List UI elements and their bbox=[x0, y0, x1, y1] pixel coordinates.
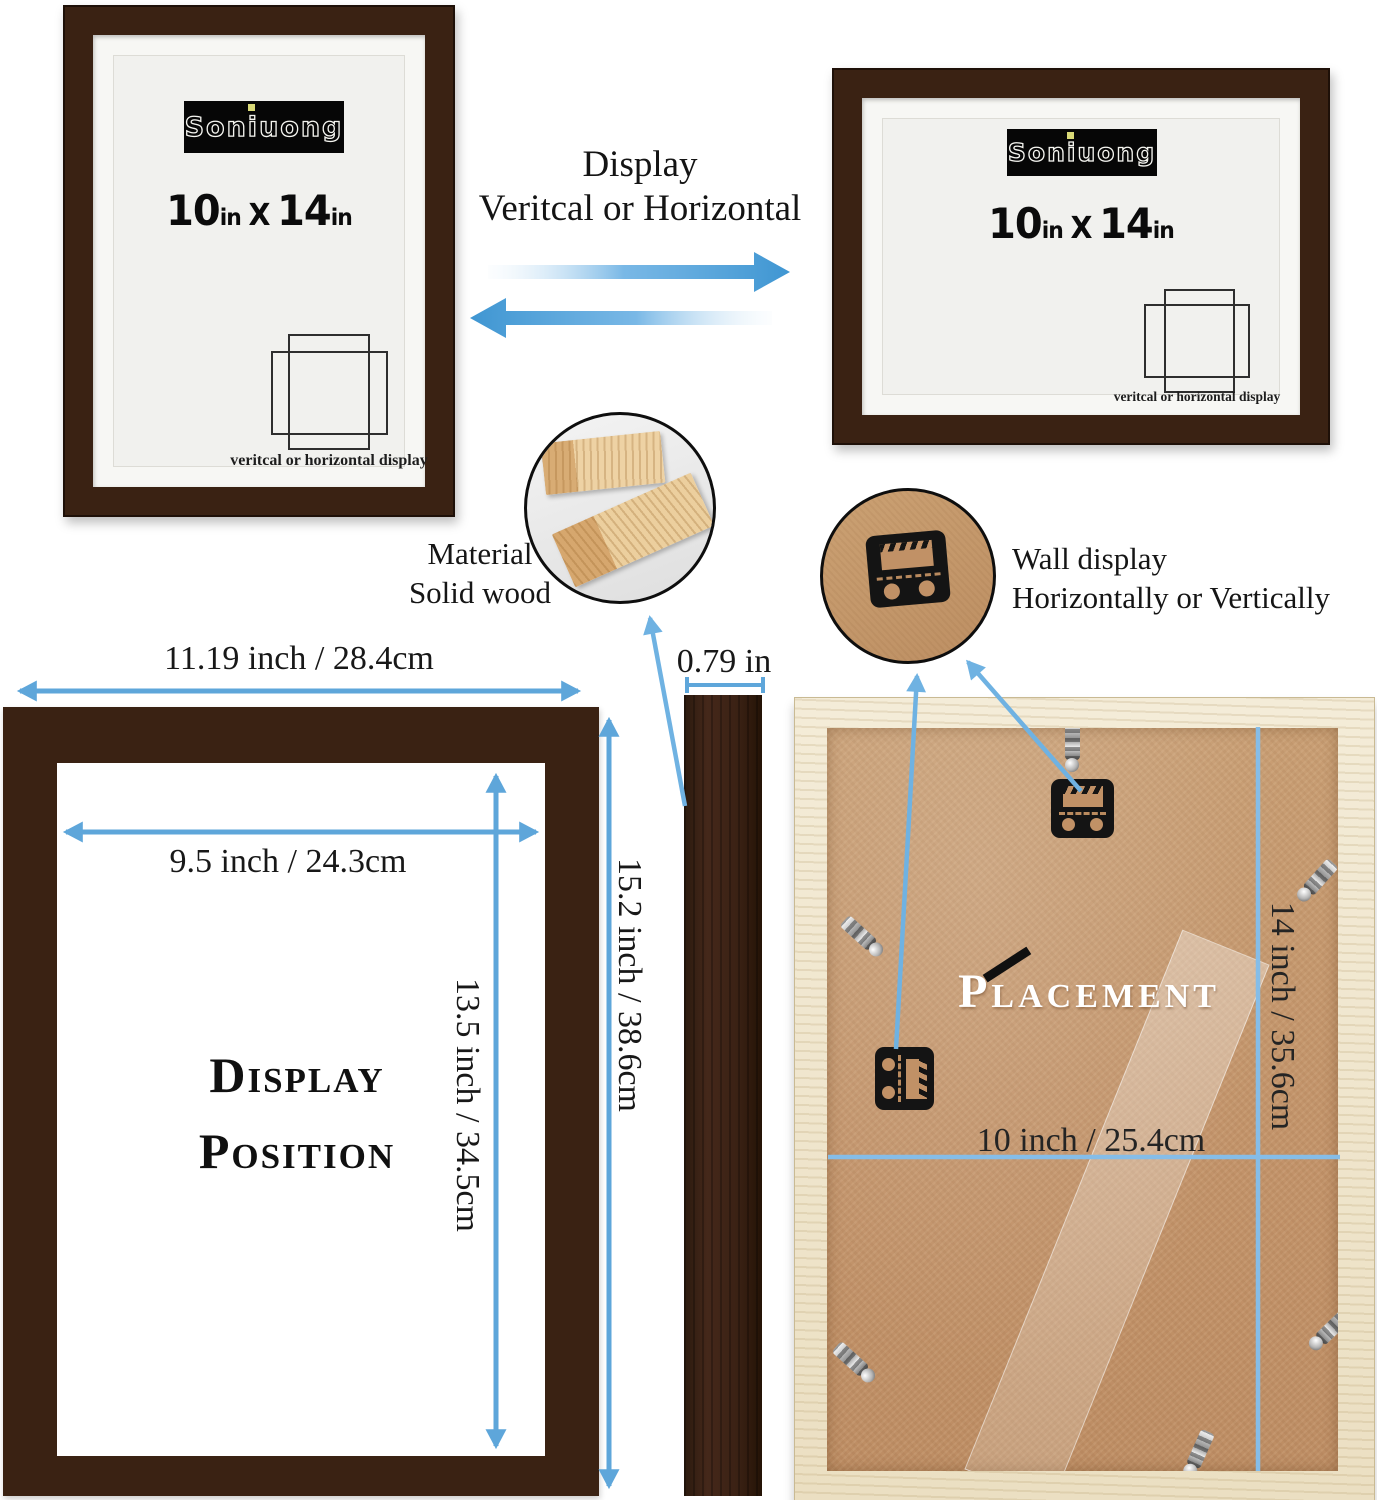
display-position-title-line2: Position bbox=[97, 1122, 497, 1180]
orientation-landscape-rect-icon bbox=[1144, 304, 1250, 378]
size-width-unit: in bbox=[220, 205, 241, 231]
size-width-unit: in bbox=[1042, 218, 1063, 244]
metal-clip-icon bbox=[1302, 858, 1338, 896]
inner-height-label: 13.5 inch / 34.5cm bbox=[447, 905, 487, 1305]
clip-screw bbox=[1181, 1461, 1199, 1471]
brand-logo: Soniuong bbox=[1007, 129, 1157, 176]
size-separator: X bbox=[241, 198, 277, 233]
size-label: 10inX14in bbox=[121, 186, 397, 235]
sawtooth-hanger-icon bbox=[875, 1047, 934, 1110]
orientation-caption: veritcal or horizontal display bbox=[209, 452, 449, 470]
brand-logo-text: Soniuong bbox=[1008, 138, 1156, 167]
hanger-hole bbox=[883, 583, 900, 600]
material-callout-line2: Solid wood bbox=[395, 574, 565, 613]
size-label: 10inX14in bbox=[893, 199, 1269, 248]
frame-display-area: Soniuong 10inX14in veritcal or horizonta… bbox=[882, 118, 1280, 395]
hanger-hole bbox=[1062, 818, 1075, 831]
wall-callout-line2: Horizontally or Vertically bbox=[1012, 579, 1342, 618]
hanger-hinge-line bbox=[898, 1055, 901, 1102]
hanger-hinge-line bbox=[1059, 812, 1106, 815]
frame-mat: Soniuong 10inX14in veritcal or horizonta… bbox=[93, 35, 425, 487]
hanger-hole bbox=[882, 1058, 895, 1071]
size-height-unit: in bbox=[331, 205, 352, 231]
back-width-label: 10 inch / 25.4cm bbox=[891, 1122, 1291, 1160]
logo-dot-icon bbox=[1067, 132, 1074, 139]
hanger-window bbox=[906, 1059, 927, 1099]
brand-logo: Soniuong bbox=[184, 101, 344, 153]
hanger-hole bbox=[1090, 818, 1103, 831]
outer-width-label: 11.19 inch / 28.4cm bbox=[99, 640, 499, 678]
depth-label: 0.79 in bbox=[654, 643, 794, 681]
clip-screw bbox=[1306, 1333, 1326, 1353]
product-infographic: Soniuong 10inX14in veritcal or horizonta… bbox=[0, 0, 1377, 1500]
frame-side-profile bbox=[684, 695, 762, 1496]
hanger-window bbox=[880, 540, 934, 570]
display-position-title-line1: Display bbox=[97, 1046, 497, 1104]
frame-mat: Soniuong 10inX14in veritcal or horizonta… bbox=[862, 98, 1300, 415]
display-note-line1: Display bbox=[440, 143, 840, 187]
metal-clip-icon bbox=[839, 915, 877, 952]
size-width: 10 bbox=[166, 186, 220, 235]
wall-hanger-detail-circle bbox=[820, 488, 996, 664]
display-orientation-note: Display Veritcal or Horizontal bbox=[440, 143, 840, 230]
frame-display-area: Soniuong 10inX14in veritcal or horizonta… bbox=[113, 55, 405, 467]
frame-vertical-photo: Soniuong 10inX14in veritcal or horizonta… bbox=[63, 5, 455, 517]
material-callout: Material Solid wood bbox=[395, 535, 565, 613]
clip-screw bbox=[866, 940, 886, 960]
brand-logo-text: Soniuong bbox=[185, 112, 344, 143]
size-separator: X bbox=[1063, 211, 1099, 246]
right-direction-arrow-icon bbox=[488, 252, 790, 292]
size-height-unit: in bbox=[1153, 218, 1174, 244]
back-height-label: 14 inch / 35.6cm bbox=[1264, 846, 1300, 1186]
back-panel: Placement 10 inch / 25.4cm 14 inch / 35.… bbox=[827, 728, 1338, 1471]
wall-display-callout: Wall display Horizontally or Vertically bbox=[1012, 540, 1342, 618]
logo-dot-icon bbox=[248, 104, 255, 111]
sawtooth-hanger-icon bbox=[1051, 779, 1114, 838]
clip-screw bbox=[1065, 758, 1079, 772]
metal-clip-icon bbox=[1065, 728, 1080, 760]
size-width: 10 bbox=[988, 199, 1042, 248]
size-height: 14 bbox=[277, 186, 331, 235]
frame-back-view: Placement 10 inch / 25.4cm 14 inch / 35.… bbox=[794, 697, 1375, 1500]
orientation-caption: veritcal or horizontal display bbox=[1077, 389, 1317, 405]
metal-clip-icon bbox=[1315, 1308, 1338, 1345]
clip-screw bbox=[858, 1366, 878, 1386]
inner-width-label: 9.5 inch / 24.3cm bbox=[88, 843, 488, 881]
sawtooth-hanger-icon bbox=[865, 530, 951, 609]
hanger-hole bbox=[918, 580, 935, 597]
material-callout-line1: Material bbox=[395, 535, 565, 574]
metal-clip-icon bbox=[831, 1341, 869, 1378]
hanger-hinge-line bbox=[877, 572, 941, 581]
metal-clip-icon bbox=[1186, 1429, 1215, 1470]
hanger-hole bbox=[882, 1086, 895, 1099]
display-note-line2: Veritcal or Horizontal bbox=[440, 187, 840, 231]
wood-piece-icon bbox=[541, 431, 666, 495]
orientation-landscape-rect-icon bbox=[271, 351, 388, 435]
wall-callout-line1: Wall display bbox=[1012, 540, 1342, 579]
outer-height-label: 15.2 inch / 38.6cm bbox=[609, 775, 649, 1195]
size-height: 14 bbox=[1099, 199, 1153, 248]
hanger-window bbox=[1063, 786, 1103, 807]
frame-horizontal-photo: Soniuong 10inX14in veritcal or horizonta… bbox=[832, 68, 1330, 445]
left-direction-arrow-icon bbox=[470, 298, 772, 338]
